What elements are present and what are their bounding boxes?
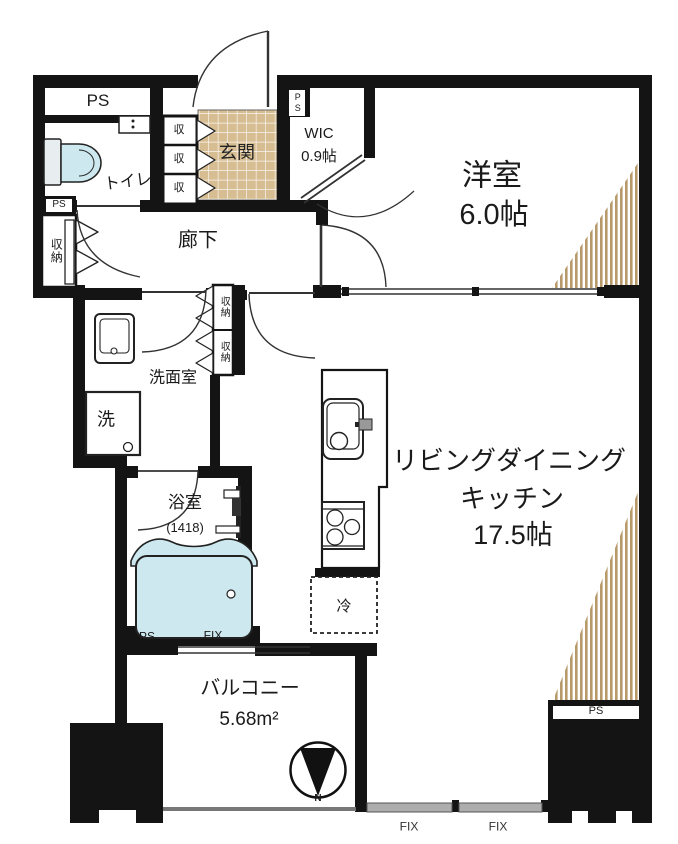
left-closet-label: 収納 [50, 238, 63, 264]
ps-top-label: PS [87, 92, 110, 110]
hallway-label: 廊下 [178, 231, 218, 252]
washroom-door [142, 290, 206, 352]
washbasin-icon [95, 314, 134, 363]
fix-bath-label: FIX [204, 630, 223, 643]
bathroom-name-label: 浴室 [168, 494, 202, 512]
compass-north-label: N [314, 794, 321, 805]
ps-wic-label: PS [292, 92, 301, 114]
bedroom-door [321, 225, 386, 287]
ldk-name-line2-label: キッチン [460, 485, 564, 512]
wall [604, 285, 640, 298]
entry-closet-cell-label: 収 [174, 154, 185, 166]
ps-bath-label: PS [139, 631, 155, 644]
ldk-size-label: 17.5帖 [473, 521, 553, 549]
hall-closet-upper-label: 収納 [218, 296, 229, 318]
washroom-label: 洗面室 [149, 371, 197, 388]
balcony-size-label: 5.68m² [219, 710, 278, 730]
compass-icon [291, 743, 346, 798]
wall [277, 75, 652, 88]
wall [364, 75, 375, 158]
wall [115, 455, 127, 723]
wall [85, 288, 142, 300]
hall-closet-lower-label: 収納 [218, 341, 229, 363]
wall [355, 656, 367, 812]
fix-right-label: FIX [489, 821, 508, 834]
wall [115, 646, 178, 655]
wall [255, 643, 377, 656]
fridge-label: 冷 [336, 599, 351, 615]
wall [233, 285, 245, 375]
wall [73, 288, 85, 468]
wall [210, 375, 220, 466]
fix-left-label: FIX [400, 821, 419, 834]
bedroom-name-label: 洋室 [462, 160, 522, 192]
wall [33, 75, 198, 88]
pillar-bottom-left [70, 723, 163, 823]
entrance-door [193, 31, 268, 107]
entry-closet-cell-label: 収 [174, 125, 185, 137]
balcony-edge [163, 807, 356, 811]
wic-size-label: 0.9帖 [301, 149, 337, 165]
ldk-door [249, 293, 315, 358]
wic-name-label: WIC [304, 126, 333, 142]
floor-plan: PS トイレ 玄関 WIC 0.9帖 PS 洋室 6.0帖 廊下 PS 収納 収… [0, 0, 678, 844]
bedroom-size-label: 6.0帖 [459, 200, 528, 230]
bathtub-icon [131, 539, 257, 638]
entry-closet-cell-label: 収 [174, 183, 185, 195]
wall [313, 285, 341, 298]
wall [73, 455, 127, 468]
balcony-name-label: バルコニー [200, 679, 300, 700]
entrance-label: 玄関 [219, 144, 255, 163]
ps-left-label: PS [52, 200, 65, 211]
sliding-door-track [341, 287, 604, 296]
hatch-triangle-bedroom [552, 160, 640, 288]
hatch-triangle-ldk [553, 487, 640, 700]
shower-icon [216, 486, 241, 538]
stove-icon [322, 502, 364, 549]
fix-window-left [367, 803, 452, 812]
fix-window-right [459, 803, 542, 812]
wall [315, 568, 380, 577]
ldk-name-line1-label: リビングダイニング [392, 447, 626, 474]
ps-pillar-label: PS [589, 706, 604, 718]
wall [452, 800, 459, 812]
bathroom-size-label: (1418) [166, 521, 204, 535]
washer-label: 洗 [97, 411, 115, 430]
